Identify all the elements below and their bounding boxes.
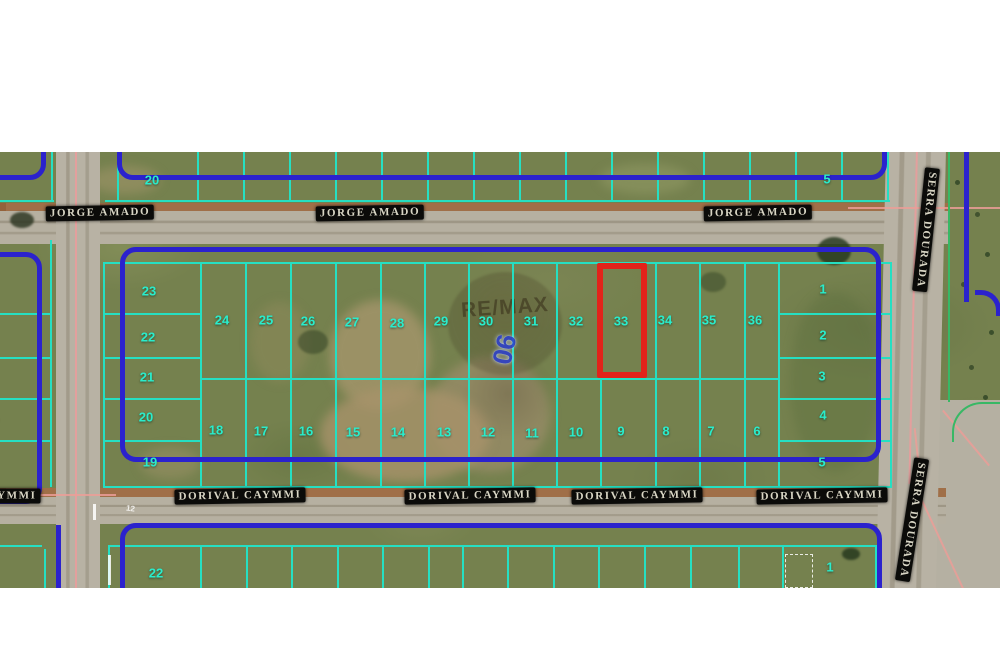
- lot-line: [948, 152, 950, 402]
- plot-map: 12 RE/MAX 06 JORGE AMADOJORGE AMADOJORGE…: [0, 152, 1000, 588]
- lot-number-label: 24: [215, 313, 229, 328]
- street-label: DORIVAL CAYMMI: [756, 487, 887, 504]
- lot-number-label: 7: [707, 424, 714, 439]
- lot-line: [964, 152, 969, 302]
- lot-number-label: 19: [143, 455, 157, 470]
- road-marking: [93, 504, 96, 520]
- listing-photo-plot-map: 12 RE/MAX 06 JORGE AMADOJORGE AMADOJORGE…: [0, 0, 1000, 667]
- block-outline: [0, 152, 46, 180]
- lot-number-label: 36: [748, 313, 762, 328]
- lot-number-label: 29: [434, 314, 448, 329]
- lot-line: [50, 240, 52, 487]
- lot-number-label: 22: [141, 330, 155, 345]
- block-outline: [117, 152, 887, 180]
- road-marking-text: 12: [125, 503, 135, 513]
- lot-number-label: 32: [569, 314, 583, 329]
- street-label: DORIVAL CAYMMI: [571, 487, 702, 504]
- lot-ground-lines: [785, 554, 813, 588]
- shrub-dots: [955, 180, 960, 185]
- highlighted-lot-33: [597, 263, 647, 378]
- lot-number-label: 2: [819, 328, 826, 343]
- lot-number-label: 12: [481, 425, 495, 440]
- lot-number-label: 26: [301, 314, 315, 329]
- lot-line: [105, 200, 890, 202]
- lot-line: [103, 262, 105, 488]
- lot-line: [56, 525, 61, 588]
- lot-number-label: 3: [818, 369, 825, 384]
- block-number-label: 06: [487, 332, 524, 368]
- lot-number-label: 20: [145, 173, 159, 188]
- street-label: DORIVAL CAYMMI: [174, 487, 305, 504]
- block-outline: [120, 523, 882, 588]
- street-label: DORIVAL CAYMMI: [0, 489, 40, 504]
- lot-line: [51, 152, 53, 201]
- street-label: JORGE AMADO: [316, 205, 425, 222]
- lot-number-label: 30: [479, 314, 493, 329]
- lot-number-label: 1: [826, 560, 833, 575]
- lot-number-label: 5: [818, 455, 825, 470]
- lot-number-label: 25: [259, 313, 273, 328]
- lot-number-label: 28: [390, 316, 404, 331]
- survey-line-pink: [908, 152, 918, 484]
- lot-number-label: 5: [823, 172, 830, 187]
- lot-number-label: 1: [819, 282, 826, 297]
- lot-number-label: 16: [299, 424, 313, 439]
- lot-number-label: 21: [140, 370, 154, 385]
- lot-number-label: 14: [391, 425, 405, 440]
- street-label: JORGE AMADO: [46, 205, 155, 222]
- lot-number-label: 8: [662, 424, 669, 439]
- block-outline: [0, 252, 42, 504]
- lot-line: [0, 545, 42, 547]
- road-marking: [108, 555, 111, 585]
- lot-number-label: 9: [617, 424, 624, 439]
- lot-number-label: 11: [525, 426, 539, 441]
- lot-line: [890, 262, 892, 488]
- lot-number-label: 22: [149, 566, 163, 581]
- lot-number-label: 6: [753, 424, 760, 439]
- street-label: JORGE AMADO: [704, 205, 813, 222]
- lot-line: [887, 152, 889, 201]
- lot-number-label: 15: [346, 425, 360, 440]
- lot-number-label: 34: [658, 313, 672, 328]
- lot-line: [44, 549, 46, 588]
- lot-number-label: 4: [819, 408, 826, 423]
- lot-number-label: 31: [524, 314, 538, 329]
- lot-number-label: 13: [437, 425, 451, 440]
- lot-number-label: 20: [139, 410, 153, 425]
- street-label: DORIVAL CAYMMI: [404, 487, 535, 504]
- lot-number-label: 35: [702, 313, 716, 328]
- lot-number-label: 27: [345, 315, 359, 330]
- lot-line: [0, 200, 54, 202]
- lot-number-label: 10: [569, 425, 583, 440]
- lot-number-label: 17: [254, 424, 268, 439]
- tree: [10, 212, 34, 228]
- lot-number-label: 18: [209, 423, 223, 438]
- lot-number-label: 23: [142, 284, 156, 299]
